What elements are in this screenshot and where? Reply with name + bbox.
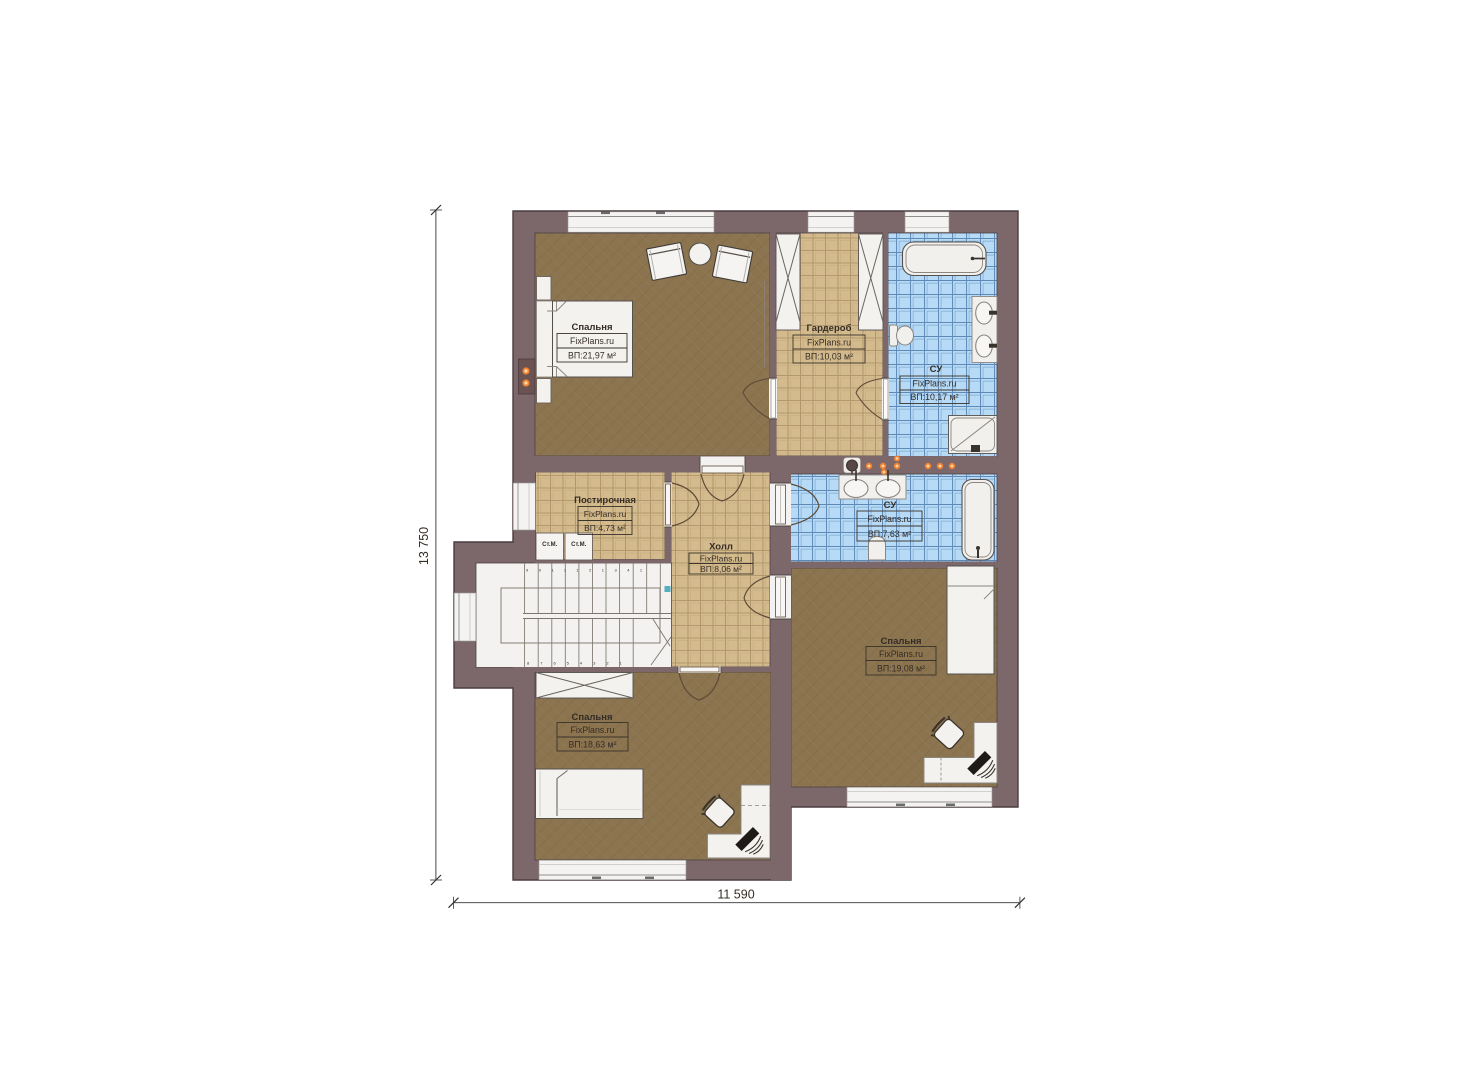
svg-text:Спальня: Спальня (571, 712, 612, 723)
svg-text:ВП:10,03 м²: ВП:10,03 м² (805, 352, 853, 362)
svg-text:FixPlans.ru: FixPlans.ru (868, 514, 912, 524)
svg-text:ВП:4,73 м²: ВП:4,73 м² (584, 523, 626, 533)
svg-text:Гардероб: Гардероб (807, 323, 852, 334)
svg-text:FixPlans.ru: FixPlans.ru (570, 336, 614, 346)
svg-text:FixPlans.ru: FixPlans.ru (571, 725, 615, 735)
svg-text:11 590: 11 590 (717, 888, 754, 902)
svg-text:Постирочная: Постирочная (574, 495, 636, 506)
svg-text:87654321: 87654321 (527, 661, 633, 666)
svg-text:Спальня: Спальня (880, 636, 921, 647)
svg-text:ВП:21,97 м²: ВП:21,97 м² (568, 351, 616, 361)
svg-text:FixPlans.ru: FixPlans.ru (913, 379, 957, 389)
svg-text:Спальня: Спальня (571, 322, 612, 333)
svg-text:ВП:19,08 м²: ВП:19,08 м² (877, 664, 925, 674)
svg-text:СУ: СУ (884, 500, 897, 511)
svg-text:ВП:10,17 м²: ВП:10,17 м² (910, 392, 958, 402)
svg-text:9011121341: 9011121341 (526, 568, 653, 573)
svg-text:Ст.М.: Ст.М. (571, 542, 586, 548)
svg-text:ВП:18,63 м²: ВП:18,63 м² (568, 740, 616, 750)
svg-text:ВП:7,63 м²: ВП:7,63 м² (868, 529, 911, 539)
svg-text:FixPlans.ru: FixPlans.ru (807, 338, 851, 348)
svg-text:FixPlans.ru: FixPlans.ru (584, 509, 627, 519)
svg-text:13 750: 13 750 (417, 527, 431, 565)
svg-text:Холл: Холл (709, 542, 733, 553)
svg-text:СУ: СУ (930, 364, 943, 375)
svg-text:FixPlans.ru: FixPlans.ru (879, 649, 923, 659)
svg-text:FixPlans.ru: FixPlans.ru (700, 554, 743, 564)
svg-text:ВП:8,06 м²: ВП:8,06 м² (700, 564, 742, 574)
svg-text:Ст.М.: Ст.М. (542, 542, 557, 548)
